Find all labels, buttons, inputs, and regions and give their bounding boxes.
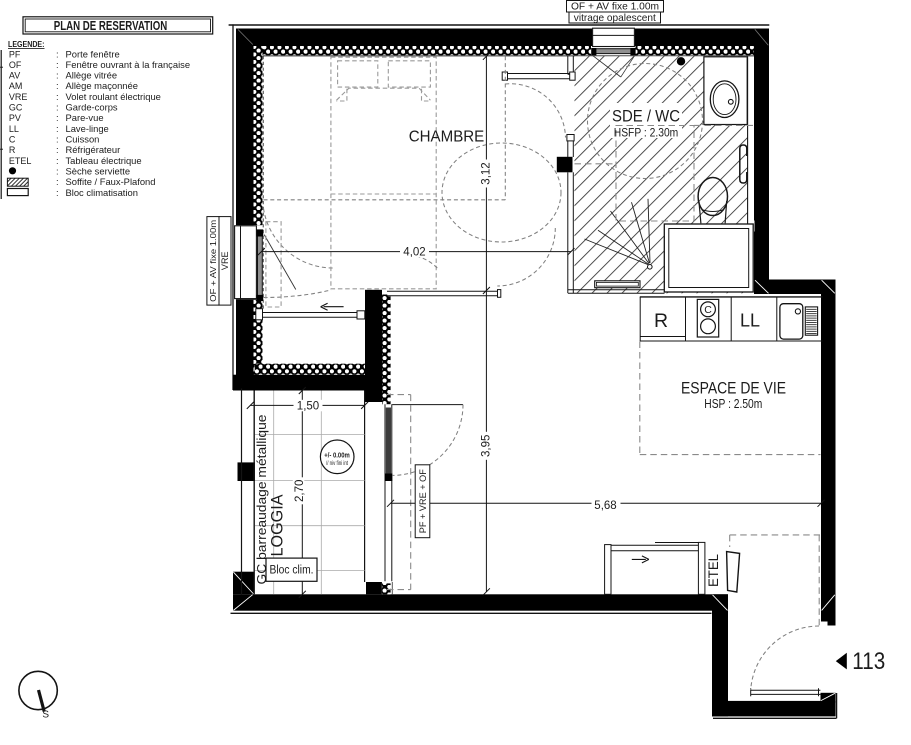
svg-text:OF + AV fixe 1.00m: OF + AV fixe 1.00m — [208, 220, 218, 302]
svg-text:C: C — [704, 304, 712, 316]
svg-text:4,02: 4,02 — [403, 246, 425, 258]
svg-text:SDE / WC: SDE / WC — [612, 106, 680, 125]
svg-text:113: 113 — [852, 648, 885, 675]
svg-text:R: R — [9, 145, 16, 155]
svg-text::: : — [56, 91, 59, 102]
svg-text:Lave-linge: Lave-linge — [66, 123, 109, 134]
svg-text:3,95: 3,95 — [480, 435, 492, 457]
svg-text:Cuisson: Cuisson — [66, 134, 100, 145]
svg-text::: : — [56, 48, 59, 59]
svg-text::: : — [56, 187, 59, 198]
svg-text::: : — [56, 155, 59, 166]
svg-text:LL: LL — [740, 311, 760, 331]
svg-text:1,50: 1,50 — [297, 400, 319, 412]
svg-text:Tableau électrique: Tableau électrique — [66, 155, 142, 166]
svg-text:Porte fenêtre: Porte fenêtre — [66, 48, 120, 59]
svg-text:HSP : 2.50m: HSP : 2.50m — [704, 397, 762, 411]
svg-text:AV: AV — [9, 71, 20, 81]
svg-text:HSFP : 2.30m: HSFP : 2.30m — [614, 126, 679, 140]
svg-text:CHAMBRE: CHAMBRE — [409, 128, 485, 145]
svg-text:Volet roulant électrique: Volet roulant électrique — [66, 91, 161, 102]
svg-text:S: S — [42, 710, 49, 721]
svg-text:AM: AM — [9, 81, 23, 91]
svg-text::: : — [56, 102, 59, 113]
svg-text:+/- 0.00m: +/- 0.00m — [324, 451, 350, 460]
svg-text:Soffite / Faux-Plafond: Soffite / Faux-Plafond — [66, 176, 156, 187]
svg-text:5,68: 5,68 — [594, 500, 616, 512]
svg-text:Bloc clim.: Bloc clim. — [270, 565, 314, 577]
svg-text::: : — [56, 70, 59, 81]
svg-text:// niv fini int: // niv fini int — [326, 460, 348, 467]
svg-text:Pare-vue: Pare-vue — [66, 112, 104, 123]
svg-text:2,70: 2,70 — [294, 480, 306, 502]
svg-text:ETEL: ETEL — [9, 156, 32, 166]
svg-text:OF + AV fixe 1.00m: OF + AV fixe 1.00m — [571, 1, 659, 13]
svg-text::: : — [56, 59, 59, 70]
svg-text:PF + VRE + OF: PF + VRE + OF — [418, 469, 429, 533]
svg-text:R: R — [654, 310, 668, 332]
svg-text:VRE: VRE — [220, 252, 230, 271]
svg-text::: : — [56, 134, 59, 145]
svg-text:LOGGIA: LOGGIA — [268, 494, 287, 557]
svg-text::: : — [56, 80, 59, 91]
svg-text:Sèche serviette: Sèche serviette — [66, 166, 131, 177]
svg-text:LL: LL — [9, 124, 19, 134]
svg-text:Allège vitrée: Allège vitrée — [66, 70, 118, 81]
svg-text:LEGENDE:: LEGENDE: — [8, 39, 45, 49]
svg-text:OF: OF — [9, 60, 22, 70]
svg-text::: : — [56, 144, 59, 155]
svg-text:GC: GC — [9, 103, 23, 113]
svg-text:vitrage opalescent: vitrage opalescent — [574, 12, 656, 24]
svg-text:Garde-corps: Garde-corps — [66, 102, 118, 113]
svg-text::: : — [56, 112, 59, 123]
svg-text:ESPACE DE VIE: ESPACE DE VIE — [681, 380, 786, 398]
svg-text::: : — [56, 176, 59, 187]
svg-text:PV: PV — [9, 113, 21, 123]
svg-text::: : — [56, 123, 59, 134]
svg-text:ETEL: ETEL — [706, 554, 721, 587]
svg-text::: : — [56, 166, 59, 177]
svg-text:Réfrigérateur: Réfrigérateur — [66, 144, 121, 155]
svg-text:Bloc climatisation: Bloc climatisation — [66, 187, 138, 198]
svg-text:Fenêtre ouvrant à la française: Fenêtre ouvrant à la française — [66, 59, 191, 70]
svg-text:VRE: VRE — [9, 92, 28, 102]
svg-text:PLAN DE RESERVATION: PLAN DE RESERVATION — [54, 19, 168, 33]
svg-text:PF: PF — [9, 49, 21, 59]
svg-text:Allège maçonnée: Allège maçonnée — [66, 80, 138, 91]
svg-text:3,12: 3,12 — [480, 162, 492, 184]
svg-text:C: C — [9, 135, 16, 145]
